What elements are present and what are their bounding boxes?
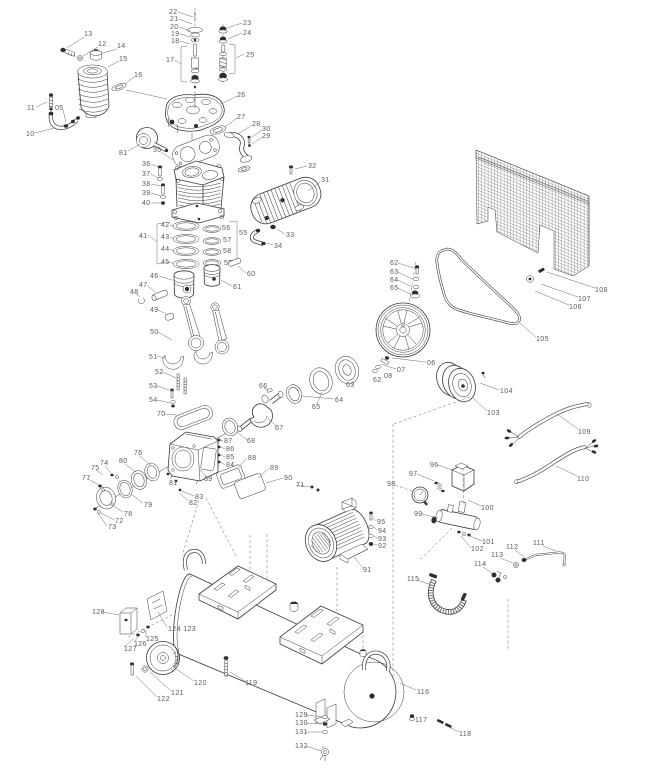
svg-text:118: 118	[459, 731, 471, 738]
svg-text:63: 63	[390, 269, 399, 276]
svg-text:37: 37	[142, 171, 151, 178]
svg-text:107: 107	[578, 296, 591, 303]
svg-text:64: 64	[335, 397, 344, 404]
svg-text:108: 108	[595, 287, 608, 294]
svg-text:79: 79	[144, 502, 153, 509]
svg-text:113: 113	[491, 552, 503, 559]
svg-text:07: 07	[397, 367, 406, 374]
svg-text:13: 13	[84, 31, 93, 38]
svg-text:67: 67	[275, 425, 284, 432]
svg-text:21: 21	[170, 16, 179, 23]
svg-text:100: 100	[481, 505, 494, 512]
svg-text:50: 50	[150, 329, 159, 336]
svg-text:73: 73	[108, 524, 117, 531]
svg-text:64: 64	[390, 277, 399, 284]
svg-text:106: 106	[569, 304, 582, 311]
svg-text:115: 115	[407, 576, 419, 583]
svg-text:30: 30	[262, 126, 271, 133]
svg-text:58: 58	[223, 248, 232, 255]
svg-text:81: 81	[169, 480, 178, 487]
svg-text:114: 114	[474, 561, 486, 568]
svg-text:103: 103	[487, 410, 500, 417]
svg-text:94: 94	[378, 528, 387, 535]
svg-text:68: 68	[247, 438, 256, 445]
svg-text:28: 28	[252, 121, 261, 128]
svg-text:75: 75	[91, 465, 100, 472]
svg-text:116: 116	[417, 689, 429, 696]
svg-text:56: 56	[222, 225, 231, 232]
svg-text:125: 125	[146, 636, 159, 643]
svg-text:19: 19	[171, 31, 180, 38]
svg-text:46: 46	[150, 273, 159, 280]
svg-text:39: 39	[142, 190, 151, 197]
svg-text:89: 89	[270, 465, 279, 472]
svg-text:132: 132	[295, 743, 308, 750]
svg-text:44: 44	[161, 246, 170, 253]
svg-text:93: 93	[378, 536, 387, 543]
svg-text:17: 17	[166, 57, 175, 64]
svg-text:32: 32	[308, 163, 317, 170]
svg-text:41: 41	[139, 233, 148, 240]
svg-text:80: 80	[119, 458, 128, 465]
svg-text:55: 55	[239, 230, 248, 237]
svg-text:120: 120	[194, 680, 207, 687]
svg-text:122: 122	[157, 696, 170, 703]
svg-text:86: 86	[226, 446, 235, 453]
svg-text:65: 65	[312, 404, 321, 411]
svg-text:05: 05	[55, 105, 64, 112]
svg-text:74: 74	[100, 460, 109, 467]
svg-text:109: 109	[578, 429, 591, 436]
svg-text:24: 24	[243, 30, 252, 37]
svg-text:47: 47	[139, 282, 148, 289]
svg-text:96: 96	[430, 462, 439, 469]
svg-text:110: 110	[577, 476, 589, 483]
svg-text:117: 117	[415, 717, 427, 724]
svg-text:69: 69	[204, 476, 213, 483]
svg-text:54: 54	[149, 397, 158, 404]
svg-text:95: 95	[377, 519, 386, 526]
svg-text:45: 45	[161, 259, 170, 266]
svg-text:77: 77	[82, 475, 91, 482]
svg-text:121: 121	[171, 690, 184, 697]
svg-text:87: 87	[224, 438, 233, 445]
svg-text:31: 31	[321, 177, 330, 184]
svg-text:57: 57	[223, 237, 232, 244]
svg-text:90: 90	[284, 475, 293, 482]
svg-text:53: 53	[149, 383, 158, 390]
svg-text:36: 36	[142, 161, 151, 168]
svg-text:105: 105	[536, 336, 549, 343]
svg-text:88: 88	[248, 455, 257, 462]
svg-text:61: 61	[233, 284, 242, 291]
svg-text:34: 34	[274, 243, 283, 250]
svg-text:62: 62	[390, 260, 399, 267]
svg-text:104: 104	[500, 388, 513, 395]
svg-text:127: 127	[124, 646, 137, 653]
svg-text:14: 14	[117, 43, 126, 50]
svg-text:23: 23	[243, 20, 252, 27]
svg-text:63: 63	[346, 382, 355, 389]
svg-text:08: 08	[384, 373, 393, 380]
svg-text:15: 15	[119, 56, 128, 63]
svg-text:65: 65	[390, 285, 399, 292]
svg-text:38: 38	[142, 181, 151, 188]
svg-text:85: 85	[226, 454, 235, 461]
svg-text:26: 26	[237, 92, 246, 99]
svg-text:20: 20	[170, 24, 179, 31]
svg-text:129: 129	[295, 712, 308, 719]
svg-text:33: 33	[286, 232, 295, 239]
svg-text:42: 42	[161, 222, 170, 229]
svg-text:119: 119	[245, 680, 257, 687]
svg-text:12: 12	[98, 41, 107, 48]
svg-text:60: 60	[247, 271, 256, 278]
svg-text:16: 16	[134, 72, 143, 79]
svg-text:98: 98	[387, 481, 396, 488]
svg-text:131: 131	[295, 729, 308, 736]
svg-text:22: 22	[169, 9, 178, 16]
svg-text:78: 78	[124, 511, 133, 518]
svg-text:76: 76	[134, 450, 143, 457]
svg-text:92: 92	[378, 543, 387, 550]
svg-text:06: 06	[427, 360, 436, 367]
svg-text:82: 82	[189, 500, 198, 507]
svg-text:81: 81	[119, 150, 128, 157]
svg-text:35: 35	[153, 147, 162, 154]
svg-text:101: 101	[482, 539, 495, 546]
svg-text:51: 51	[149, 354, 158, 361]
svg-text:124 123: 124 123	[168, 626, 196, 633]
svg-text:99: 99	[414, 511, 423, 518]
svg-text:40: 40	[142, 200, 151, 207]
svg-text:18: 18	[171, 38, 180, 45]
svg-text:11: 11	[27, 105, 35, 112]
svg-text:10: 10	[26, 131, 35, 138]
svg-text:43: 43	[161, 234, 170, 241]
svg-text:97: 97	[409, 471, 418, 478]
svg-text:29: 29	[262, 133, 271, 140]
svg-text:49: 49	[150, 307, 159, 314]
svg-text:112: 112	[506, 544, 518, 551]
svg-text:128: 128	[92, 609, 105, 616]
svg-text:62: 62	[373, 377, 382, 384]
svg-text:70: 70	[157, 411, 166, 418]
svg-text:102: 102	[471, 546, 484, 553]
svg-text:52: 52	[155, 369, 164, 376]
svg-text:91: 91	[363, 567, 372, 574]
svg-text:130: 130	[295, 720, 308, 727]
svg-text:25: 25	[246, 52, 255, 59]
svg-text:27: 27	[237, 114, 246, 121]
